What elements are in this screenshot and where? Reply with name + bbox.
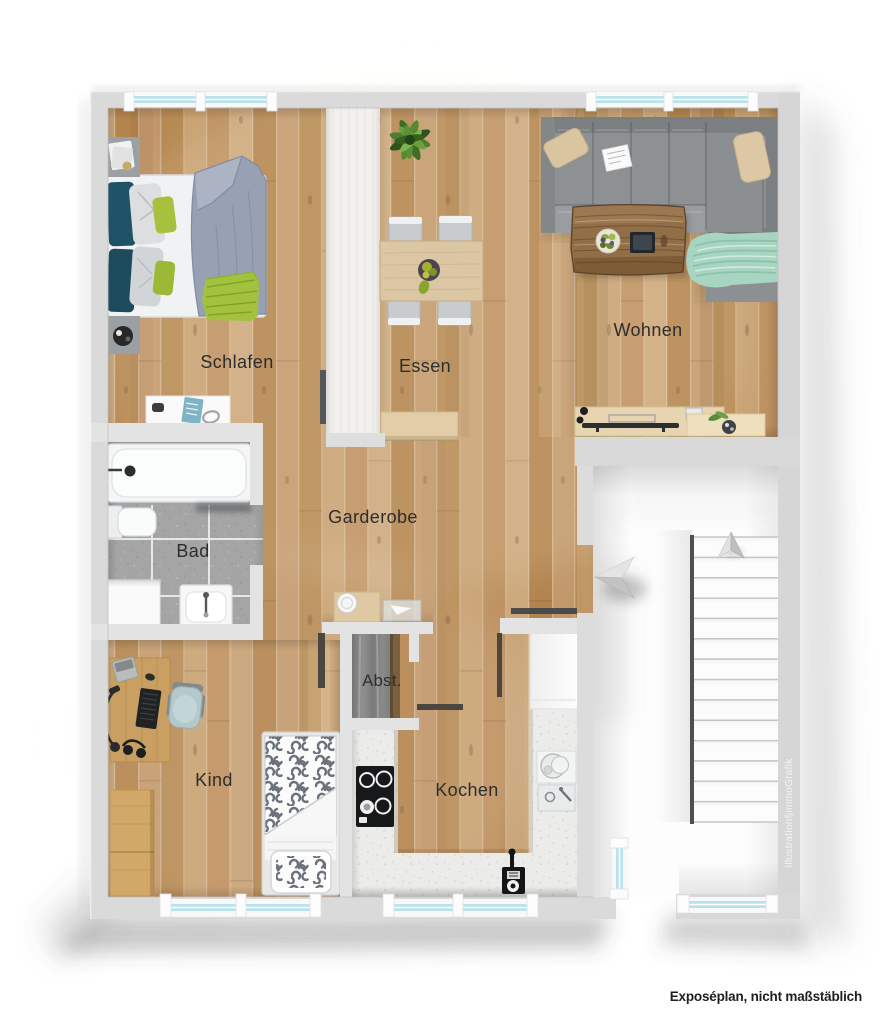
svg-text:Kind: Kind bbox=[195, 770, 233, 790]
svg-text:Bad: Bad bbox=[176, 541, 209, 561]
svg-text:Essen: Essen bbox=[399, 356, 451, 376]
svg-text:Garderobe: Garderobe bbox=[328, 507, 418, 527]
svg-text:Exposéplan, nicht maßstäblich: Exposéplan, nicht maßstäblich bbox=[670, 989, 862, 1004]
svg-text:Kochen: Kochen bbox=[435, 780, 498, 800]
svg-text:Schlafen: Schlafen bbox=[200, 352, 273, 372]
svg-text:Wohnen: Wohnen bbox=[613, 320, 682, 340]
svg-text:Abst.: Abst. bbox=[362, 672, 402, 690]
svg-text:Illustration§immoGrafik: Illustration§immoGrafik bbox=[784, 758, 795, 868]
